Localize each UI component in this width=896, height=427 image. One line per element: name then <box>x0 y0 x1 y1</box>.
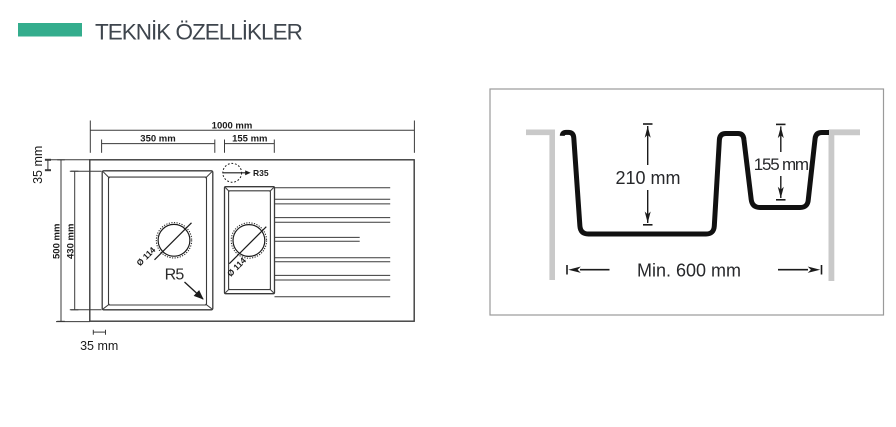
svg-text:210 mm: 210 mm <box>615 168 680 188</box>
svg-text:Ø 114: Ø 114 <box>134 245 157 268</box>
svg-text:500 mm: 500 mm <box>52 224 63 259</box>
svg-text:Min. 600 mm: Min. 600 mm <box>637 261 741 281</box>
svg-text:155 mm: 155 mm <box>754 155 809 174</box>
svg-text:1000 mm: 1000 mm <box>212 121 253 132</box>
svg-text:R5: R5 <box>165 267 185 284</box>
svg-text:155 mm: 155 mm <box>232 133 267 144</box>
svg-text:35 mm: 35 mm <box>31 146 45 184</box>
svg-text:430 mm: 430 mm <box>66 224 77 259</box>
svg-text:R35: R35 <box>253 168 269 178</box>
svg-text:350 mm: 350 mm <box>140 133 175 144</box>
svg-text:TEKNİK ÖZELLİKLER: TEKNİK ÖZELLİKLER <box>95 20 303 45</box>
svg-text:35 mm: 35 mm <box>80 339 118 353</box>
